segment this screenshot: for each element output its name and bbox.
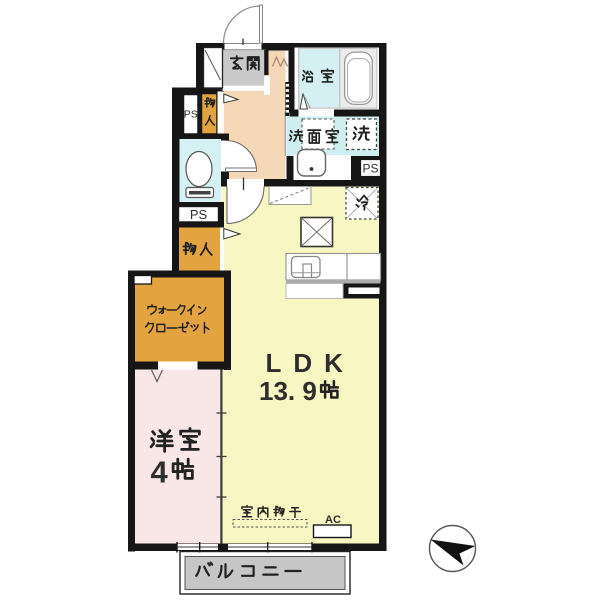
svg-text:4: 4 xyxy=(151,455,169,490)
svg-text:PS: PS xyxy=(190,207,208,222)
svg-text:AC: AC xyxy=(325,514,341,526)
svg-text:13. 9: 13. 9 xyxy=(259,376,317,406)
svg-text:PS: PS xyxy=(184,109,198,121)
svg-text:LDK: LDK xyxy=(266,348,355,378)
svg-text:PS: PS xyxy=(362,162,378,176)
